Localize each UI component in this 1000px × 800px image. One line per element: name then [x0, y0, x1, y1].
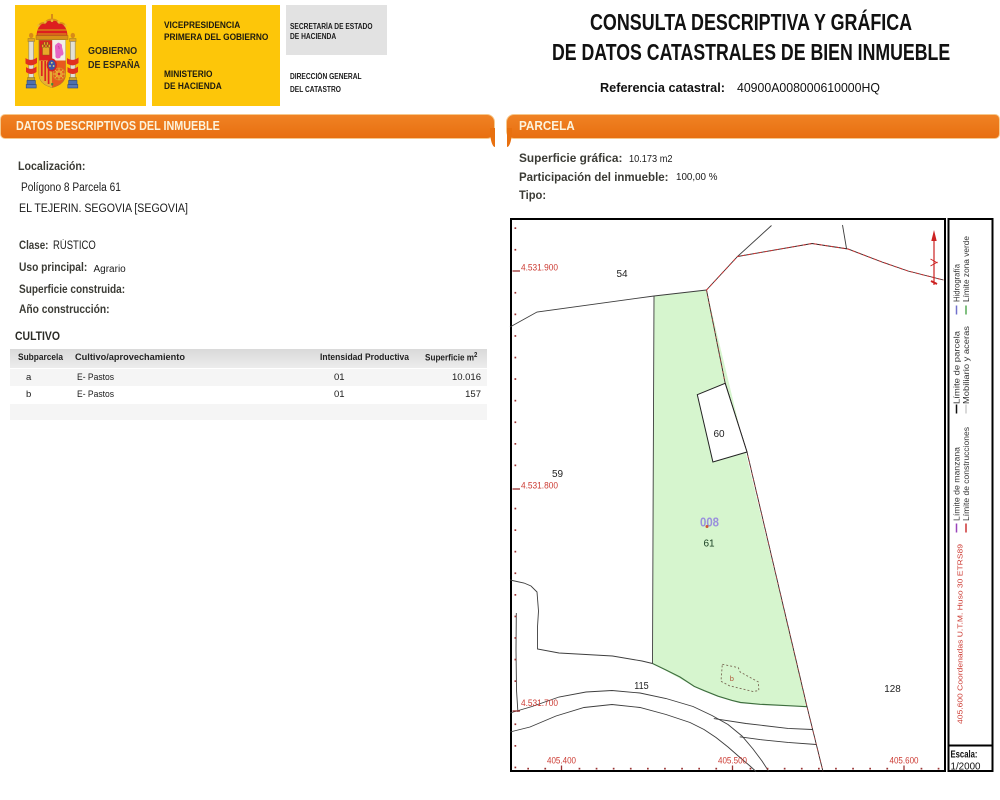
svg-text:Escala:: Escala:	[951, 749, 978, 761]
svg-text:54: 54	[616, 269, 628, 280]
svg-text:115: 115	[634, 681, 649, 692]
svg-text:60: 60	[713, 429, 725, 440]
svg-text:59: 59	[552, 469, 564, 480]
svg-text:Límite zona verde: Límite zona verde	[961, 236, 971, 302]
svg-text:1/2000: 1/2000	[951, 761, 981, 773]
svg-text:405.600 Coordenadas U.T.M. Hus: 405.600 Coordenadas U.T.M. Huso 30 ETRS8…	[956, 544, 965, 724]
svg-text:Límite de parcela: Límite de parcela	[952, 331, 962, 404]
svg-text:4.531.800: 4.531.800	[521, 481, 558, 492]
svg-text:128: 128	[884, 684, 901, 695]
svg-text:Mobiliario y aceras: Mobiliario y aceras	[961, 326, 971, 404]
svg-text:4.531.700: 4.531.700	[521, 698, 558, 709]
svg-text:Hidrografía: Hidrografía	[952, 264, 962, 302]
svg-text:008: 008	[700, 516, 719, 530]
svg-text:405.600: 405.600	[890, 756, 919, 767]
svg-text:405.400: 405.400	[547, 756, 576, 767]
svg-text:Límite de manzana: Límite de manzana	[952, 447, 962, 521]
svg-text:61: 61	[703, 539, 715, 550]
svg-text:Límite de construcciones: Límite de construcciones	[961, 427, 971, 521]
svg-text:405.500: 405.500	[718, 756, 747, 767]
svg-text:b: b	[730, 674, 734, 683]
svg-text:4.531.900: 4.531.900	[521, 263, 558, 274]
